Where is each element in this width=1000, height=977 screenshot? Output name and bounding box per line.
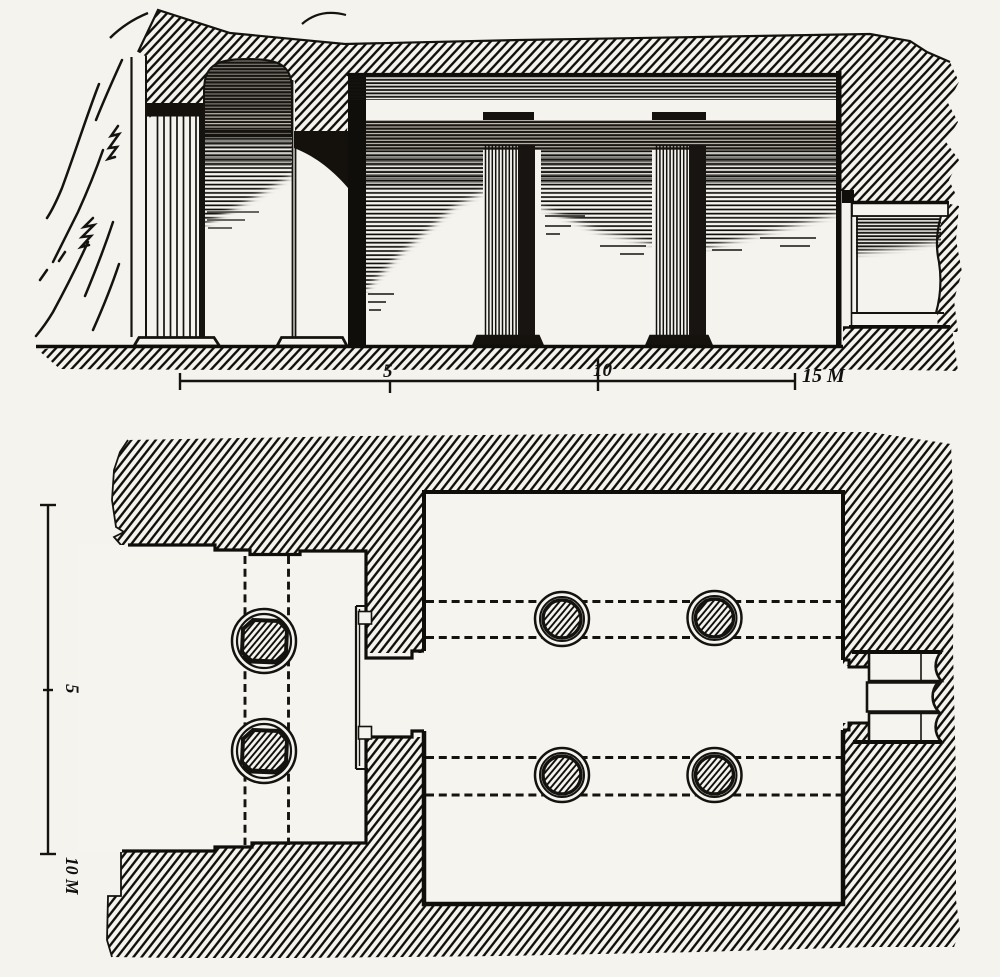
svg-text:10 M: 10 M <box>62 857 82 896</box>
svg-text:10: 10 <box>593 360 613 381</box>
svg-text:15 M: 15 M <box>802 365 846 387</box>
svg-text:5: 5 <box>61 684 82 694</box>
svg-text:5: 5 <box>383 361 393 382</box>
